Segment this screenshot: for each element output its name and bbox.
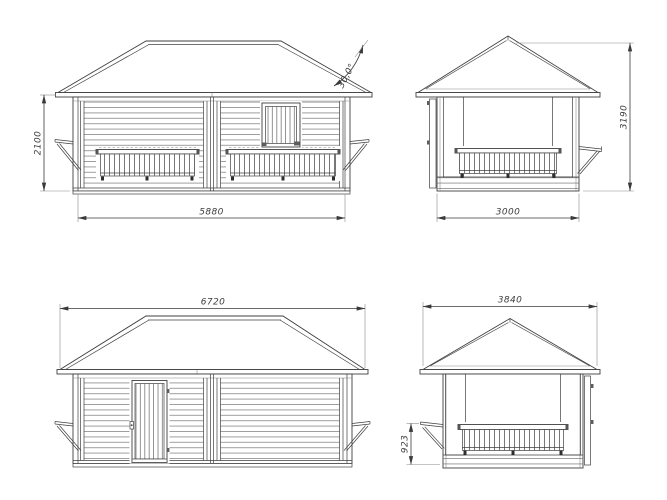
siding-panel-right — [221, 379, 340, 461]
pavilion-elevations-drawing: 2100 5880 30,0° — [0, 0, 667, 500]
view-front-elevation: 2100 5880 30,0° — [34, 40, 373, 222]
railing-front-right — [226, 146, 340, 181]
roof-front — [56, 41, 373, 97]
roof-fascia — [420, 370, 600, 375]
roof-fascia — [57, 370, 368, 375]
dimension-front-width: 5880 — [78, 194, 345, 223]
blueprint-canvas: 2100 5880 30,0° — [0, 0, 667, 500]
counter-bar — [96, 150, 199, 155]
counter-bar — [226, 150, 340, 155]
dim-label-total-height: 3190 — [620, 105, 630, 130]
base-siding — [443, 455, 583, 468]
roof-side — [420, 319, 600, 375]
view-side-elevation-left: 3840 — [401, 296, 601, 469]
railing-side — [455, 146, 561, 178]
dim-label-counter-height: 923 — [401, 435, 411, 453]
roof-side — [416, 36, 600, 97]
base-sill — [73, 191, 350, 194]
dim-label-side-width: 3000 — [496, 208, 521, 218]
door-hinge-top — [167, 389, 169, 393]
base-sill — [73, 464, 352, 468]
door-hinge-bottom — [167, 448, 169, 452]
dim-label-front-width: 5880 — [199, 208, 224, 218]
side-flap-left — [421, 422, 445, 449]
dim-label-side-width: 3840 — [498, 296, 523, 306]
counter-bar — [455, 149, 561, 154]
roof-fascia — [416, 93, 600, 98]
door — [130, 379, 170, 464]
side-flap-right — [578, 147, 602, 175]
closed-flap-edge-left — [427, 99, 436, 188]
counter-bar — [458, 425, 568, 430]
dim-label-rear-width: 6720 — [201, 298, 226, 308]
roof-fascia — [56, 93, 373, 98]
railing-side — [458, 422, 568, 455]
dim-label-front-height: 2100 — [34, 131, 44, 156]
wall-rear — [73, 374, 352, 467]
hatch-shutter — [260, 101, 302, 149]
base-siding — [437, 177, 579, 191]
dimension-counter-height: 923 — [401, 424, 441, 465]
view-side-elevation-right: 3000 3190 — [416, 36, 634, 222]
view-rear-elevation: 6720 — [55, 298, 370, 468]
dimension-side-width: 3000 — [437, 194, 579, 223]
railing-front-left — [96, 146, 199, 181]
door-planks — [135, 384, 164, 460]
roof-rear — [57, 316, 368, 374]
closed-flap-edge-right — [585, 376, 594, 465]
